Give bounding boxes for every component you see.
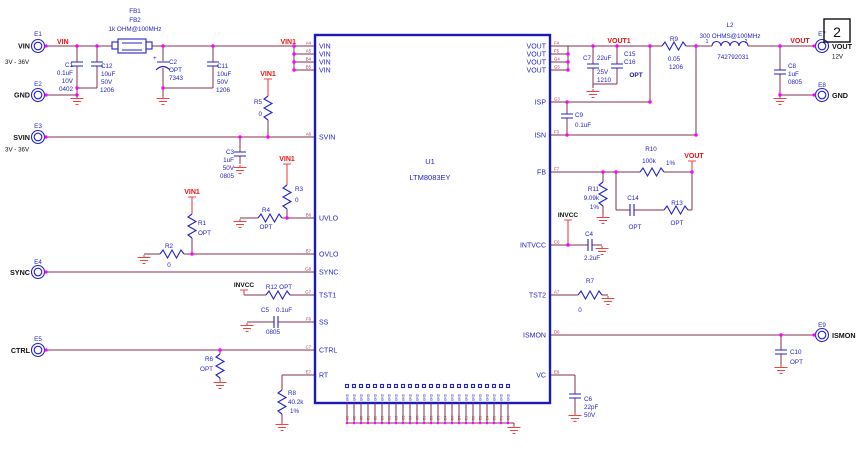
tolerance-R8: 1%: [290, 408, 300, 415]
page-number: 2: [833, 24, 841, 40]
ref-L2: L2: [726, 22, 734, 29]
package-C2: 7343: [169, 75, 184, 82]
ref-R11: R11: [588, 186, 600, 193]
pin-name: VC: [536, 372, 546, 379]
resistor-R10: [640, 168, 664, 176]
ref-FB2: FB2: [129, 17, 141, 24]
ground-icon: [587, 89, 600, 98]
value-R1: OPT: [198, 230, 211, 237]
ref-FB1: FB1: [129, 8, 141, 15]
ground-icon: [774, 96, 787, 105]
tolerance-R11: 1%: [590, 204, 600, 211]
connector-name: SVIN: [13, 133, 30, 142]
schematic-page: U1 LTM8083EY A4VINA5VINB4VINB5VINA6SVINB…: [0, 0, 861, 452]
pin-name: GND: [408, 393, 412, 401]
ref-R4: R4: [262, 207, 271, 214]
ground-icon: [71, 96, 84, 105]
value-C11: 10uF: [217, 71, 232, 78]
pin-designator: F5: [554, 49, 560, 54]
connector-E2: [32, 89, 45, 102]
pin-name: GND: [415, 393, 419, 401]
value-C3: 1uF: [223, 157, 234, 164]
ref-R7: R7: [586, 278, 595, 285]
value-C5: 0.1uF: [276, 307, 292, 314]
pin-name: GND: [485, 393, 489, 401]
connector-E9: [816, 329, 829, 342]
pin-name: GND: [401, 393, 405, 401]
ref-C2: C2: [169, 59, 178, 66]
ground-icon: [138, 255, 151, 264]
value-R2: 0: [167, 262, 171, 269]
voltage-C1: 10V: [62, 78, 74, 85]
capacitor-C6: [569, 394, 581, 398]
pin-designator: C7: [306, 345, 312, 350]
value-C2: OPT: [169, 67, 182, 74]
ref-R13: R13: [671, 200, 683, 207]
pin-designator: A6: [306, 132, 312, 137]
ref-C15: C15: [624, 51, 636, 58]
connector-ref: E2: [34, 81, 42, 88]
voltage-C11: 50V: [217, 79, 229, 86]
value-C4: 2.2uF: [584, 255, 600, 262]
pin-designator: E3: [479, 416, 483, 420]
ref-C5: C5: [261, 307, 270, 314]
pin-name: VOUT: [527, 59, 547, 66]
resistor-R4: [258, 214, 282, 222]
pin-name: VIN: [319, 59, 331, 66]
pin-designator: D1: [423, 416, 427, 420]
pin1-L2: 1: [706, 39, 709, 45]
ref-C6: C6: [584, 396, 593, 403]
pin-name: GND: [429, 393, 433, 401]
pin-designator: B4: [306, 57, 312, 62]
capacitor-C8: [774, 70, 786, 74]
pin-designator: C4: [409, 416, 413, 420]
pin-name: GND: [471, 393, 475, 401]
pin-name: TST1: [319, 292, 336, 299]
pin-designator: A7: [554, 290, 560, 295]
value-R11: 9.09k: [584, 195, 600, 202]
connector-ref: E4: [34, 259, 42, 266]
ground-icon: [157, 96, 170, 105]
pin-designator: D5: [451, 416, 455, 420]
pin-designator: E7: [306, 370, 312, 375]
connector-name: VIN: [18, 42, 30, 51]
connector-ref: E8: [818, 82, 826, 89]
pin-name: VIN: [319, 43, 331, 50]
pin-name: GND: [499, 393, 503, 401]
ref-R3: R3: [295, 186, 304, 193]
inductor-L2: [712, 42, 748, 47]
pin-name: GND: [436, 393, 440, 401]
ground-icon: [241, 323, 254, 332]
package-C5: 0805: [266, 329, 281, 336]
pin-name: GND: [506, 393, 510, 401]
connector-E8: [816, 89, 829, 102]
resistor-R11: [599, 182, 607, 206]
resistor-R13: [664, 206, 688, 214]
pin-name: GND: [464, 393, 468, 401]
package-C11: 1206: [216, 87, 231, 94]
pin-name: GND: [457, 393, 461, 401]
net-label-vin: VIN: [57, 39, 69, 46]
pin-designator: F4: [554, 41, 560, 46]
ic-refdes: U1: [425, 157, 435, 166]
package-C12: 1206: [100, 87, 115, 94]
ref-R12: R12 OPT: [266, 284, 292, 291]
pin-name: GND: [450, 393, 454, 401]
pin-name: UVLO: [319, 215, 339, 222]
resistor-R9: [662, 42, 686, 50]
pin-designator: C5: [416, 416, 420, 420]
connector-ref: E1: [34, 31, 42, 38]
pin-designator: A5: [306, 49, 312, 54]
pin-name: GND: [478, 393, 482, 401]
net-label-vout: VOUT: [790, 38, 810, 45]
resistor-R2: [160, 250, 184, 258]
pin-name: GND: [352, 393, 356, 401]
ground-icon: [234, 165, 247, 174]
tolerance-R10: 1%: [666, 160, 676, 167]
connector-ref: E7: [818, 31, 826, 38]
pin-name: OVLO: [319, 251, 339, 258]
page-number-box: 2: [824, 19, 850, 42]
pin-designator: E2: [472, 416, 476, 420]
voltage-C12: 50V: [101, 79, 113, 86]
pin-name: CTRL: [319, 347, 337, 354]
pin-designator: E4: [486, 416, 490, 420]
pin-name: GND: [380, 393, 384, 401]
ground-icon: [234, 219, 247, 228]
net-label-vout: VOUT: [684, 153, 704, 160]
connector-name: GND: [14, 91, 30, 100]
ground-icon: [214, 380, 227, 389]
connector-sub: 3V - 36V: [5, 59, 30, 66]
pin-name: GND: [422, 393, 426, 401]
pin-designator: A2: [353, 416, 357, 420]
capacitor-C5: [274, 316, 278, 328]
value-R3: 0: [295, 197, 299, 204]
value-R6: OPT: [200, 366, 213, 373]
resistor-R6: [216, 354, 224, 378]
voltage-C7: 25V: [597, 69, 609, 76]
pin-designator: C6: [554, 240, 560, 245]
net-label-vin1: VIN1: [280, 39, 296, 46]
ground-icon: [569, 413, 582, 422]
ref-C14: C14: [627, 195, 639, 202]
net-label-vin1: VIN1: [184, 189, 200, 196]
pin-name: ISN: [534, 132, 546, 139]
value-C8: 1uF: [788, 71, 799, 78]
net-label-invcc: INVCC: [234, 282, 255, 289]
voltage-C6: 50V: [584, 412, 596, 419]
pin-designator: G3: [554, 97, 560, 102]
resistor-R8: [278, 390, 286, 414]
pin-designator: B2: [374, 416, 378, 420]
ic-part-number: LTM8083EY: [409, 173, 450, 182]
pin-designator: C1: [388, 416, 392, 420]
connector-E4: [32, 266, 45, 279]
value-C10: OPT: [790, 359, 803, 366]
pin-designator: D2: [430, 416, 434, 420]
connector-name: ISMON: [832, 331, 856, 340]
package-C3: 0805: [220, 173, 235, 180]
connector-ref: E9: [818, 322, 826, 329]
pin-name: SS: [319, 319, 329, 326]
ferrite-bead-FB2: [112, 39, 152, 53]
ref-C7: C7: [583, 55, 592, 62]
pin2-L2: 2: [745, 39, 748, 45]
pin-designator: A4: [306, 41, 312, 46]
value-C14: OPT: [629, 224, 642, 231]
pin-designator: D7: [458, 416, 462, 420]
pin-designator: G7: [305, 290, 311, 295]
pin-name: INTVCC: [520, 242, 546, 249]
connector-ref: E5: [34, 336, 42, 343]
pin-name: ISP: [535, 99, 547, 106]
pin-designator: B1: [367, 416, 371, 420]
net-label-invcc: INVCC: [558, 212, 579, 219]
connector-name: GND: [832, 91, 848, 100]
ref-C16: C16: [624, 59, 636, 66]
resistor-R5: [264, 96, 272, 120]
plus-C2: +: [153, 55, 157, 62]
ref-C11: C11: [217, 63, 229, 70]
pin-name: VOUT: [527, 51, 547, 58]
pin-name: GND: [359, 393, 363, 401]
ref-C9: C9: [575, 112, 584, 119]
capacitor-C10: [775, 350, 787, 354]
net-label-vin1: VIN1: [260, 71, 276, 78]
resistor-R7: [578, 291, 602, 299]
ref-R8: R8: [288, 390, 297, 397]
resistor-R12: [266, 291, 290, 299]
mpn-L2: 742792031: [717, 54, 749, 61]
pin-designator: F6: [306, 317, 312, 322]
pin-designator: B6: [306, 213, 312, 218]
value-FB: 1k OHM@100MHz: [109, 26, 162, 33]
pin-designator: F1: [500, 416, 504, 420]
connector-sub: 12V: [832, 54, 844, 61]
package-C8: 0805: [788, 79, 803, 86]
pin-designator: D6: [554, 330, 560, 335]
pin-designator: C3: [402, 416, 406, 420]
pin-name: RT: [319, 372, 329, 379]
pin-name: GND: [394, 393, 398, 401]
package-R9: 1206: [669, 64, 684, 71]
value-C15-C16: OPT: [629, 72, 642, 79]
connector-E1: [32, 40, 45, 53]
capacitor-C9: [561, 114, 573, 118]
ref-R1: R1: [198, 220, 207, 227]
pin-name: FB: [537, 169, 546, 176]
ref-C1: C1: [65, 62, 74, 69]
ref-R5: R5: [254, 99, 263, 106]
schematic-canvas: U1 LTM8083EY A4VINA5VINB4VINB5VINA6SVINB…: [0, 0, 861, 452]
pin-name: GND: [387, 393, 391, 401]
ground-icon: [508, 425, 521, 434]
connector-name: VOUT: [832, 42, 853, 51]
ground-icon: [775, 365, 788, 374]
net-label-vout1: VOUT1: [607, 38, 630, 45]
net-label-vin1: VIN1: [279, 156, 295, 163]
ground-icon: [602, 296, 615, 305]
capacitor-C4: [588, 239, 592, 251]
value-R5: 0: [258, 111, 262, 118]
ic-body-LTM8083: [315, 35, 550, 403]
capacitor-C14: [630, 204, 634, 216]
ref-R10: R10: [645, 146, 657, 153]
capacitor-C3: [234, 152, 246, 156]
pin-designator: E5: [493, 416, 497, 420]
ref-C4: C4: [585, 231, 594, 238]
connector-E3: [32, 131, 45, 144]
connector-E5: [32, 344, 45, 357]
pin-name: ISMON: [523, 332, 546, 339]
pin-designator: E6: [554, 370, 560, 375]
value-C7: 22uF: [597, 55, 612, 62]
capacitor-C7: [587, 64, 599, 68]
pin-designator: C2: [395, 416, 399, 420]
ground-icon: [597, 215, 610, 224]
value-C6: 22pF: [584, 404, 599, 411]
pin-designator: D4: [444, 416, 448, 420]
connector-ref: E3: [34, 123, 42, 130]
pin-designator: B7: [306, 249, 312, 254]
value-R8: 40.2k: [288, 399, 304, 406]
connector-name: CTRL: [11, 346, 31, 355]
pin-designator: G5: [554, 65, 560, 70]
pin-designator: G1: [507, 415, 511, 420]
value-C12: 10uF: [101, 71, 116, 78]
pin-designator: F3: [554, 130, 560, 135]
value-R13: OPT: [671, 220, 684, 227]
package-C1: 0402: [59, 86, 74, 93]
ground-icon: [596, 246, 609, 255]
value-R9: 0.05: [668, 56, 681, 63]
resistor-R1: [188, 214, 196, 238]
pin-name: GND: [373, 393, 377, 401]
ground-icon: [276, 422, 289, 431]
voltage-C3: 50V: [223, 165, 235, 172]
pin-designator: B5: [306, 65, 312, 70]
package-C7: 1210: [597, 77, 612, 84]
value-R4: OPT: [260, 224, 273, 231]
pin-name: VIN: [319, 67, 331, 74]
pin-name: GND: [366, 393, 370, 401]
value-L2: 300 OHMS@100MHz: [700, 33, 761, 40]
ref-C8: C8: [788, 63, 797, 70]
connector-sub: 3V - 36V: [5, 147, 30, 154]
pin-name: VOUT: [527, 43, 547, 50]
pin-name: TST2: [529, 292, 546, 299]
pin-designator: A3: [360, 416, 364, 420]
pin-designator: F7: [554, 167, 560, 172]
connector-name: SYNC: [10, 268, 30, 277]
pin-name: GND: [492, 393, 496, 401]
value-C1: 0.1uF: [57, 70, 73, 77]
pin-designator: E1: [465, 416, 469, 420]
pin-designator: A1: [346, 416, 350, 420]
capacitor-C15-C16: [611, 64, 623, 68]
pin-name: SYNC: [319, 269, 338, 276]
pin-designator: D3: [437, 416, 441, 420]
ref-C12: C12: [101, 63, 113, 70]
value-C9: 0.1uF: [575, 122, 591, 129]
pin-name: GND: [443, 393, 447, 401]
pin-name: SVIN: [319, 134, 335, 141]
ref-R2: R2: [165, 243, 174, 250]
resistor-R3: [283, 185, 291, 209]
ref-C3: C3: [226, 149, 235, 156]
value-R10: 100k: [642, 158, 657, 165]
ref-C10: C10: [790, 349, 802, 356]
pin-name: VIN: [319, 51, 331, 58]
value-R7: 0: [578, 307, 582, 314]
ref-R9: R9: [670, 36, 679, 43]
pin-designator: G4: [554, 57, 560, 62]
ref-R6: R6: [205, 356, 214, 363]
pin-name: GND: [345, 393, 349, 401]
pin-designator: B3: [381, 416, 385, 420]
pin-designator: G8: [305, 267, 311, 272]
pin-name: VOUT: [527, 67, 547, 74]
